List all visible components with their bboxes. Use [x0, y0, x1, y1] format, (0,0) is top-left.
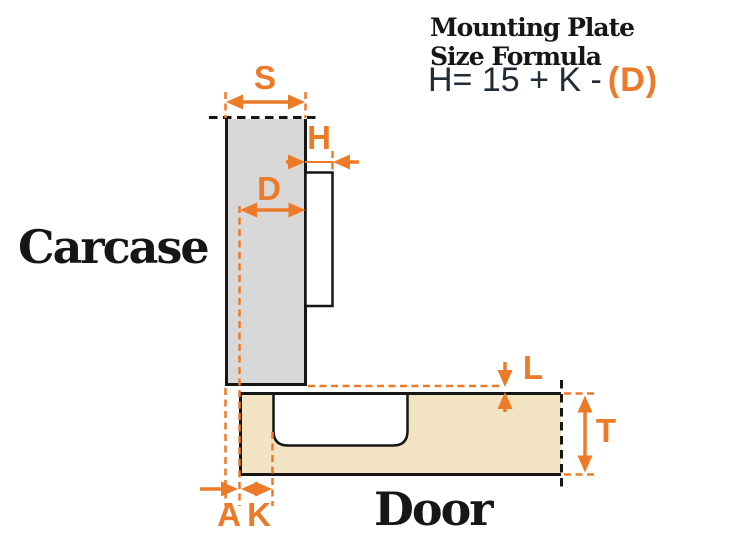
hinge-cup-cutout	[274, 395, 408, 446]
formula-prefix: H= 15 + K -	[428, 61, 602, 99]
carcase-panel	[209, 118, 319, 386]
door-panel	[239, 380, 562, 491]
door-label: Door	[374, 486, 492, 532]
dim-a-arrow	[200, 482, 238, 497]
dim-k-label: K	[240, 498, 278, 531]
formula-expression: H= 15 + K -(D)	[428, 63, 658, 97]
mounting-plate	[306, 173, 333, 307]
dim-t-label: T	[587, 414, 625, 447]
dim-l-arrow	[498, 362, 513, 412]
hinge-mounting-diagram: S H D L T A K Carcase Door Mounting Plat…	[0, 0, 750, 558]
carcase-label: Carcase	[18, 224, 208, 270]
dim-h-label: H	[300, 121, 338, 154]
formula-title-line1: Mounting Plate	[430, 13, 634, 42]
dim-l-label: L	[514, 351, 552, 384]
formula-highlight: (D)	[608, 61, 658, 99]
dim-d-label: D	[250, 172, 288, 205]
dim-s-label: S	[246, 61, 284, 94]
dim-s-arrow	[226, 95, 305, 110]
dim-k-arrow	[241, 482, 272, 497]
